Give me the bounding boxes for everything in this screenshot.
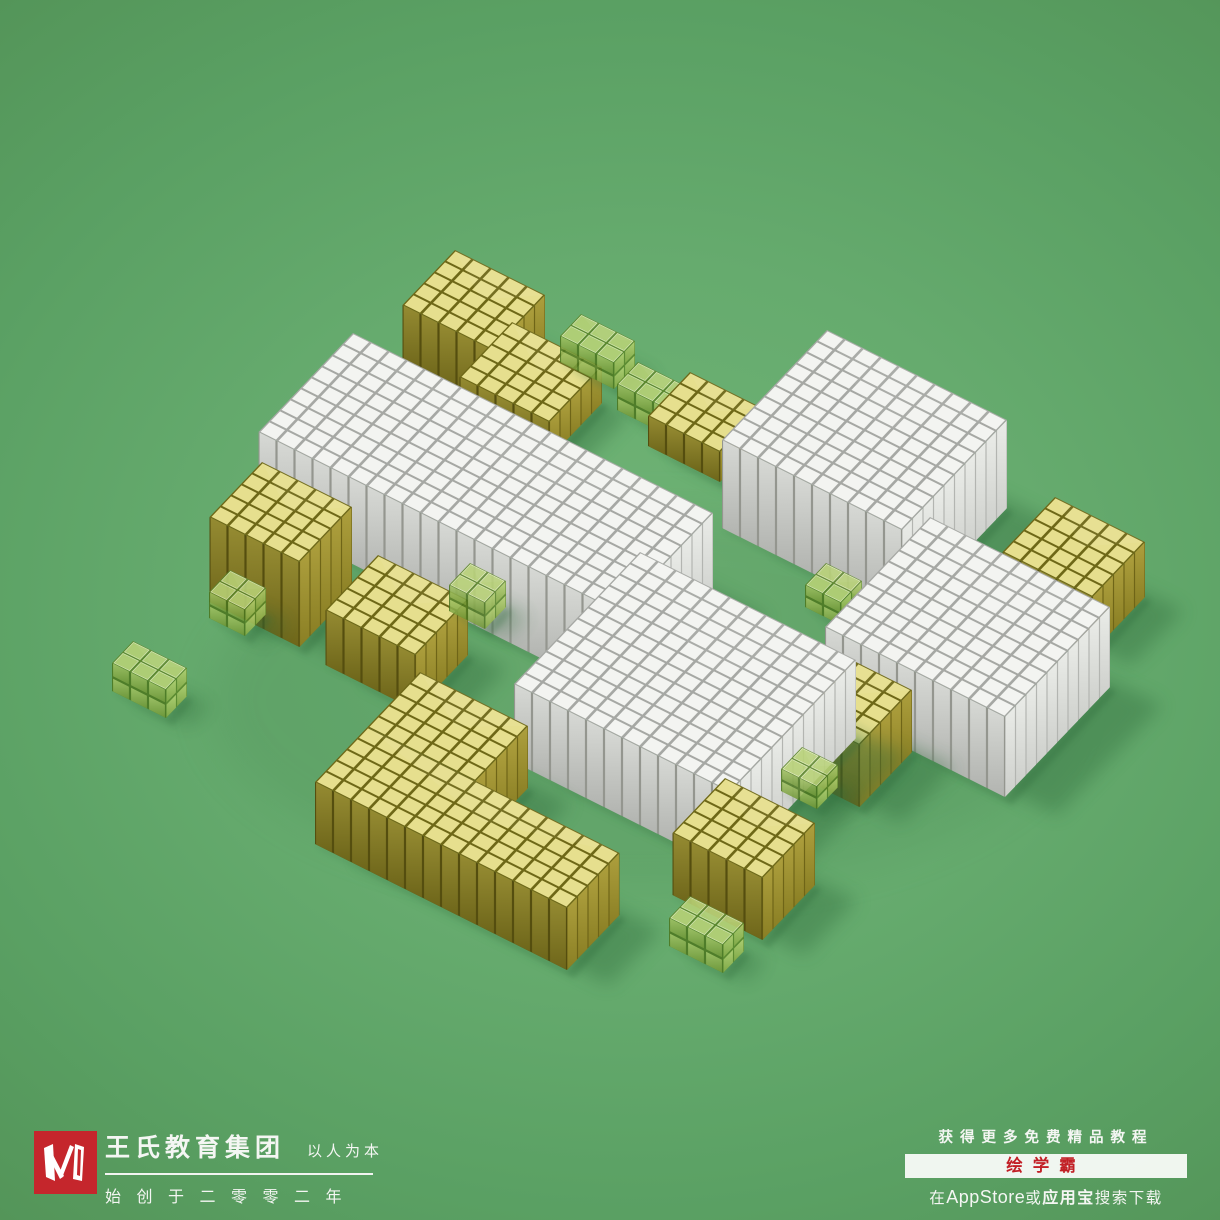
voxel-scene <box>0 0 1220 1220</box>
block-glass-left-2 <box>112 641 210 727</box>
poster-canvas: 王氏教育集团 以人为本 始创于二零零二年 获得更多免费精品教程 绘学霸 在App… <box>0 0 1220 1220</box>
